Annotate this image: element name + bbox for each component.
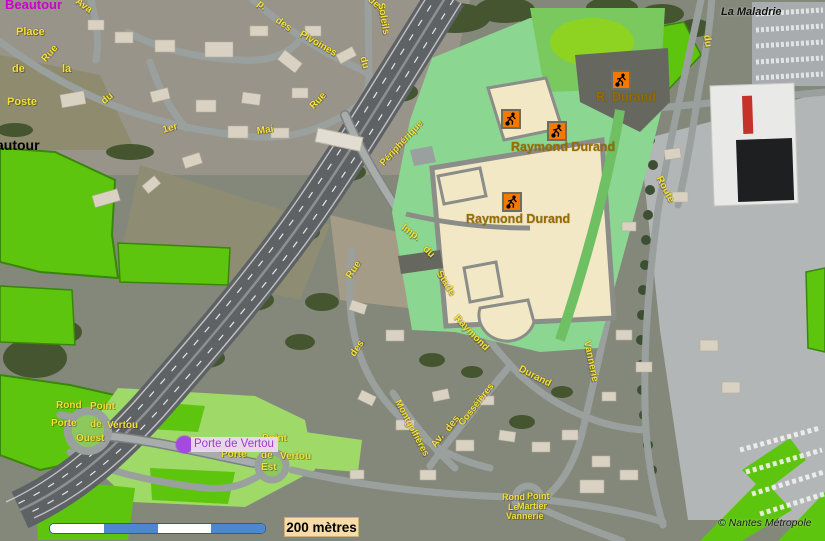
scale-label: 200 mètres — [284, 517, 359, 537]
soccer-player-icon[interactable] — [502, 192, 522, 212]
soccer-player-glyph — [504, 194, 520, 210]
roundabout-label: Vertou — [280, 452, 311, 462]
place-label: Poste — [7, 97, 37, 108]
roundabout-label: de — [90, 420, 102, 430]
map-attribution: © Nantes Métropole — [718, 517, 812, 529]
place-label: de — [12, 64, 25, 75]
soccer-player-icon[interactable] — [501, 109, 521, 129]
aerial-photo-layer — [0, 0, 825, 541]
poi-label: Porte de Vertou — [191, 437, 278, 452]
scale-bar — [49, 523, 266, 534]
scale-segment — [158, 524, 212, 533]
soccer-player-glyph — [613, 72, 629, 88]
facility-label: Raymond Durand — [511, 141, 615, 154]
roundabout-label: Point — [527, 492, 550, 501]
roundabout-label: Porte — [51, 419, 77, 429]
place-label-partial: autour — [0, 138, 40, 152]
place-label-beautour: Beautour — [5, 0, 62, 11]
scale-segment — [50, 524, 104, 533]
facility-label: Raymond Durand — [466, 213, 570, 226]
roundabout-label: Est — [261, 463, 277, 473]
roundabout-label: Vertou — [107, 421, 138, 431]
roundabout-label: Rond — [56, 401, 82, 411]
roundabout-label: Point — [90, 402, 115, 412]
place-label: Place — [16, 27, 45, 38]
roundabout-label: Vannerie — [506, 512, 544, 521]
soccer-player-icon[interactable] — [611, 70, 631, 90]
place-label: la — [62, 64, 71, 75]
soccer-player-glyph — [549, 123, 565, 139]
facility-label: R. Durand — [596, 91, 656, 104]
place-label-la-maladrie: La Maladrie — [721, 7, 782, 18]
roundabout-label: Martier — [517, 502, 547, 511]
scale-segment — [211, 524, 265, 533]
scale-segment — [104, 524, 158, 533]
roundabout-label: Ouest — [76, 434, 104, 444]
soccer-player-glyph — [503, 111, 519, 127]
soccer-player-icon[interactable] — [547, 121, 567, 141]
selected-poi-marker[interactable]: Porte de Vertou — [176, 436, 278, 453]
street-label: du — [701, 34, 713, 47]
map-viewport[interactable]: Beautour Place de la Poste autour La Mal… — [0, 0, 825, 541]
